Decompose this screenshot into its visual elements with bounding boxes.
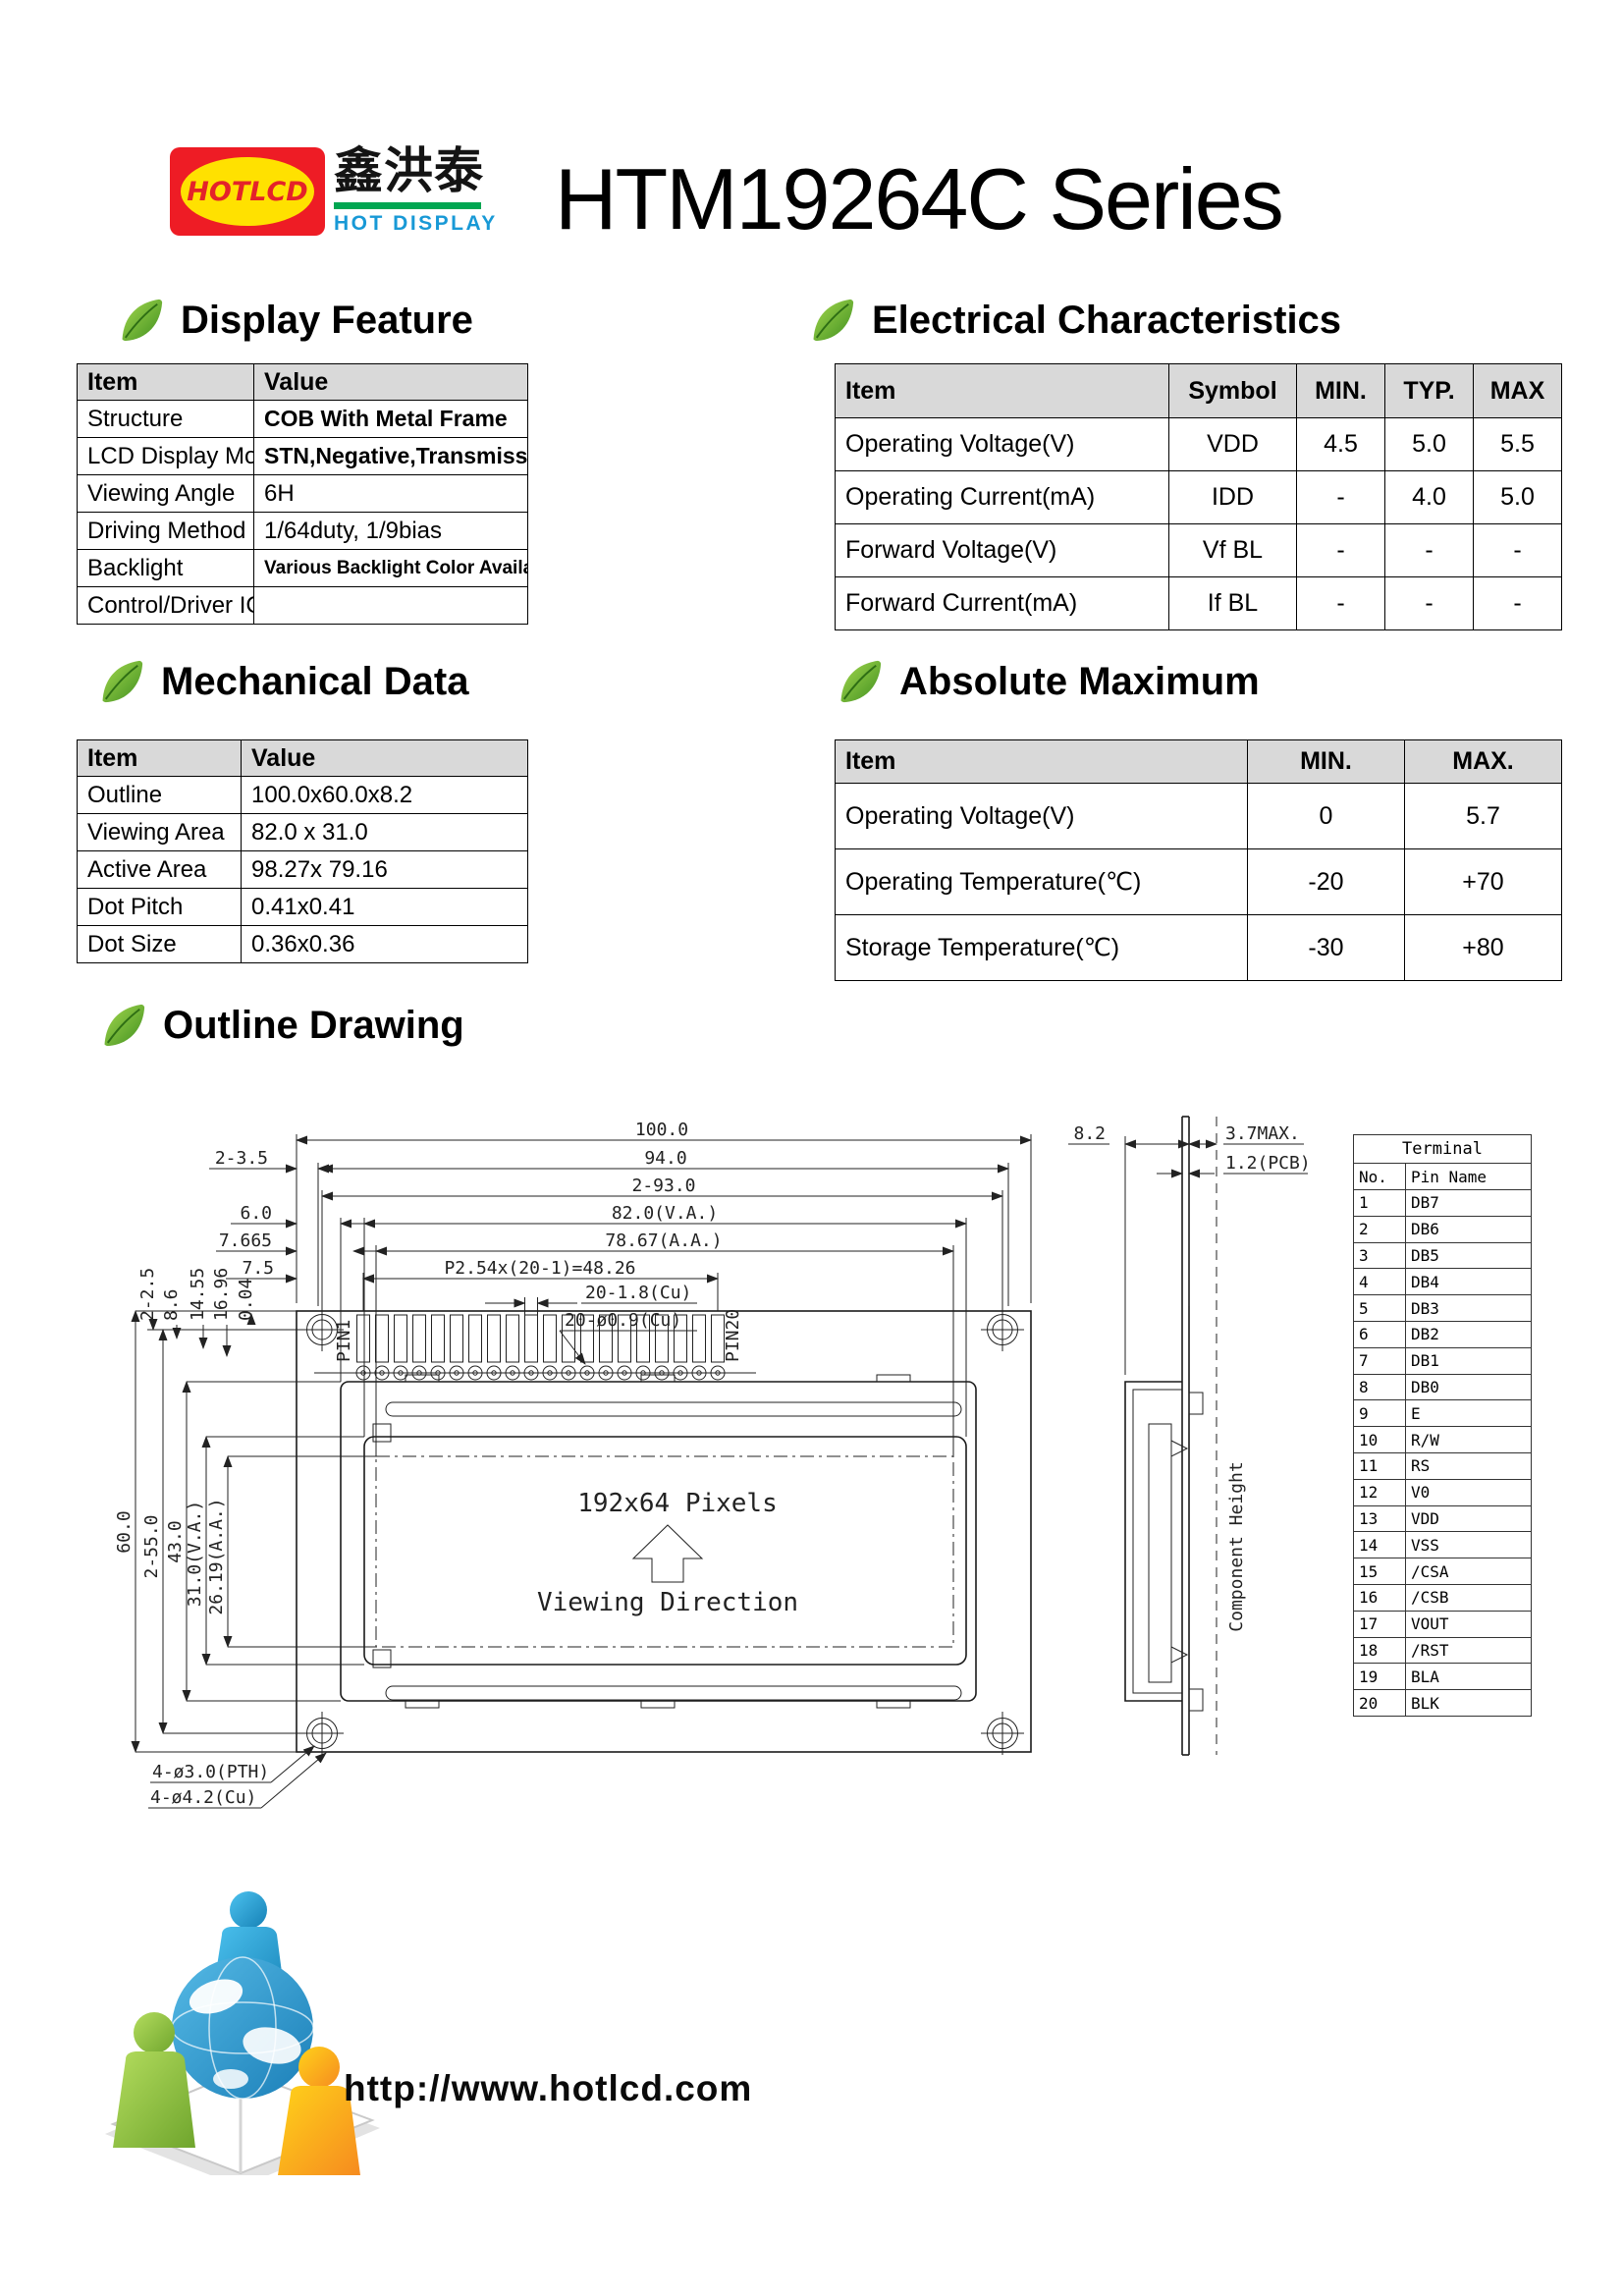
section-display-feature: Display Feature [116, 295, 473, 346]
pin-row: 19BLA [1354, 1664, 1532, 1690]
outline-drawing-canvas: 192x64 Pixels Viewing Direction PIN1 PIN… [79, 1075, 1571, 1890]
column-header: Item [78, 740, 242, 777]
table-row: Dot Size0.36x0.36 [78, 926, 528, 963]
dim-label: 20-ø0.9(Cu) [565, 1310, 681, 1331]
dim-label: 82.0(V.A.) [612, 1203, 718, 1224]
leaf-icon [98, 1000, 149, 1051]
pin-row: 15/CSA [1354, 1558, 1532, 1585]
leaf-icon [807, 295, 858, 346]
column-header: MAX [1474, 364, 1562, 418]
page-title: HTM19264C Series [555, 149, 1321, 249]
pin-row: 8DB0 [1354, 1374, 1532, 1400]
mounting-hole [981, 1712, 1024, 1755]
column-header: Symbol [1169, 364, 1297, 418]
column-header: MAX. [1405, 740, 1562, 784]
dim-label: P2.54x(20-1)=48.26 [444, 1258, 635, 1279]
dim-label: 26.19(A.A.) [206, 1498, 227, 1614]
column-header: Pin Name [1406, 1164, 1532, 1190]
dim-label: 8.2 [1073, 1123, 1106, 1144]
column-header: MIN. [1297, 364, 1385, 418]
website-url: http://www.hotlcd.com [344, 2068, 752, 2109]
column-header: Value [242, 740, 528, 777]
pin-row: 6DB2 [1354, 1321, 1532, 1347]
pin-row: 3DB5 [1354, 1242, 1532, 1269]
dim-label: 4-ø4.2(Cu) [150, 1787, 256, 1808]
table-row: LCD Display ModeSTN,Negative,Transmissiv… [78, 438, 528, 475]
section-title: Absolute Maximum [899, 660, 1260, 704]
dim-label: 1.2(PCB) [1225, 1153, 1311, 1174]
mounting-hole [981, 1308, 1024, 1351]
dim-label: 14.55 [188, 1268, 208, 1321]
mechanical-data-table: Item Value Outline100.0x60.0x8.2 Viewing… [77, 739, 528, 963]
pin-row: 11RS [1354, 1452, 1532, 1479]
table-row: Control/Driver IC [78, 587, 528, 625]
table-row: Dot Pitch0.41x0.41 [78, 889, 528, 926]
section-electrical: Electrical Characteristics [807, 295, 1341, 346]
dim-label: 78.67(A.A.) [605, 1230, 722, 1251]
logo-ellipse: HOTLCD [181, 157, 314, 226]
column-header: No. [1354, 1164, 1406, 1190]
pin-row: 9E [1354, 1400, 1532, 1427]
globe-icon [172, 1957, 313, 2099]
dim-label: 100.0 [635, 1120, 688, 1140]
column-header: MIN. [1248, 740, 1405, 784]
front-view: 192x64 Pixels Viewing Direction PIN1 PIN… [297, 1308, 1031, 1755]
company-logo: HOTLCD 鑫洪泰 HOT DISPLAY [170, 147, 484, 241]
pin-row: 2DB6 [1354, 1216, 1532, 1242]
dim-label: 94.0 [644, 1148, 686, 1169]
pin-row: 14VSS [1354, 1532, 1532, 1558]
table-row: Viewing Area82.0 x 31.0 [78, 814, 528, 851]
pin-row: 18/RST [1354, 1637, 1532, 1664]
column-header: Item [836, 364, 1169, 418]
logo-green-bar [334, 202, 481, 209]
dim-label: 0.04 [236, 1279, 256, 1321]
pin-row: 13VDD [1354, 1505, 1532, 1532]
table-row: Viewing Angle6H [78, 475, 528, 513]
pin-row: 4DB4 [1354, 1269, 1532, 1295]
pin-row: 17VOUT [1354, 1611, 1532, 1637]
side-view: 8.2 3.7MAX. 1.2(PCB) Component Height [1068, 1117, 1311, 1755]
dim-label: 20-1.8(Cu) [585, 1283, 691, 1303]
left-dimensions: 60.0 2-55.0 43.0 31.0(V.A.) 26.19(A.A.) [114, 1311, 376, 1752]
dim-label: 7.665 [219, 1230, 272, 1251]
terminal-title: Terminal [1354, 1135, 1532, 1164]
outline-drawing-svg: 192x64 Pixels Viewing Direction PIN1 PIN… [79, 1075, 1571, 1890]
pin-row: 1DB7 [1354, 1190, 1532, 1217]
dim-label: 8.6 [161, 1288, 182, 1321]
logo-badge: HOTLCD [170, 147, 325, 236]
top-dimensions: 100.0 94.0 2-93.0 82.0(V.A.) 78.67(A.A.)… [137, 1120, 1031, 1456]
section-title: Outline Drawing [163, 1004, 464, 1048]
table-row: Operating Voltage(V)VDD4.55.05.5 [836, 418, 1562, 471]
table-row: Forward Current(mA)If BL--- [836, 577, 1562, 630]
dim-label: 2-3.5 [215, 1148, 268, 1169]
active-area [376, 1456, 953, 1647]
dim-label: 60.0 [114, 1510, 135, 1553]
globe-people-logo [93, 1881, 388, 2175]
pin-row: 10R/W [1354, 1427, 1532, 1453]
column-header: Item [78, 364, 254, 401]
dim-label: 2-93.0 [631, 1175, 695, 1196]
table-row: Operating Temperature(℃)-20+70 [836, 849, 1562, 915]
frame-tabs [373, 1375, 910, 1708]
viewing-area [364, 1437, 966, 1665]
hole-callouts: 4-ø3.0(PTH) 4-ø4.2(Cu) [148, 1746, 326, 1808]
viewing-direction-label: Viewing Direction [537, 1588, 798, 1617]
section-mechanical: Mechanical Data [96, 656, 468, 707]
table-row: Operating Current(mA)IDD-4.05.0 [836, 471, 1562, 524]
table-row: Driving Method1/64duty, 1/9bias [78, 513, 528, 550]
column-header: Value [254, 364, 528, 401]
absolute-maximum-table: Item MIN. MAX. Operating Voltage(V)05.7 … [835, 739, 1562, 981]
pin-row: 20BLK [1354, 1690, 1532, 1717]
table-row: StructureCOB With Metal Frame [78, 401, 528, 438]
logo-badge-text: HOTLCD [187, 177, 307, 207]
pin20-label: PIN20 [723, 1309, 743, 1362]
dim-label: 2-2.5 [137, 1268, 158, 1321]
display-feature-table: Item Value StructureCOB With Metal Frame… [77, 363, 528, 625]
elastomer-slot [386, 1402, 961, 1416]
pin-row: 12V0 [1354, 1479, 1532, 1505]
mounting-hole [300, 1712, 344, 1755]
logo-subtitle: HOT DISPLAY [334, 212, 498, 236]
datasheet-page: HOTLCD 鑫洪泰 HOT DISPLAY HTM19264C Series … [0, 0, 1623, 2296]
electrical-characteristics-table: Item Symbol MIN. TYP. MAX Operating Volt… [835, 363, 1562, 630]
terminal-pin-table: Terminal No. Pin Name 1DB7 2DB6 3DB5 4DB… [1353, 1134, 1532, 1717]
pixels-label: 192x64 Pixels [577, 1489, 778, 1518]
pin1-label: PIN1 [334, 1320, 354, 1362]
logo-chinese-text: 鑫洪泰 [334, 143, 483, 198]
section-outline-drawing: Outline Drawing [98, 1000, 464, 1051]
dim-label: 4-ø3.0(PTH) [152, 1762, 269, 1782]
table-row: Outline100.0x60.0x8.2 [78, 777, 528, 814]
leaf-icon [835, 656, 886, 707]
pin-row: 5DB3 [1354, 1295, 1532, 1322]
column-header: TYP. [1385, 364, 1474, 418]
dim-label: 6.0 [240, 1203, 272, 1224]
pin-row: 16/CSB [1354, 1584, 1532, 1611]
viewing-direction-arrow-icon [633, 1525, 702, 1582]
table-row: Forward Voltage(V)Vf BL--- [836, 524, 1562, 577]
metal-frame [341, 1382, 976, 1701]
dim-label: 16.96 [211, 1268, 232, 1321]
dim-label: 7.5 [242, 1258, 274, 1279]
section-absolute-maximum: Absolute Maximum [835, 656, 1260, 707]
column-header: Item [836, 740, 1248, 784]
table-row: Storage Temperature(℃)-30+80 [836, 915, 1562, 981]
section-title: Display Feature [181, 299, 473, 343]
table-row: Active Area98.27x 79.16 [78, 851, 528, 889]
dim-label: 31.0(V.A.) [185, 1501, 205, 1607]
pin-row: 7DB1 [1354, 1347, 1532, 1374]
dim-label: 43.0 [165, 1520, 186, 1562]
elastomer-slot [386, 1686, 961, 1700]
leaf-icon [116, 295, 167, 346]
dim-label: 3.7MAX. [1225, 1123, 1300, 1144]
section-title: Mechanical Data [161, 660, 468, 704]
dim-label: 2-55.0 [141, 1514, 162, 1578]
component-height-label: Component Height [1226, 1461, 1247, 1631]
table-row: Operating Voltage(V)05.7 [836, 784, 1562, 849]
leaf-icon [96, 656, 147, 707]
section-title: Electrical Characteristics [872, 299, 1341, 343]
table-row: BacklightVarious Backlight Color Availab… [78, 550, 528, 587]
